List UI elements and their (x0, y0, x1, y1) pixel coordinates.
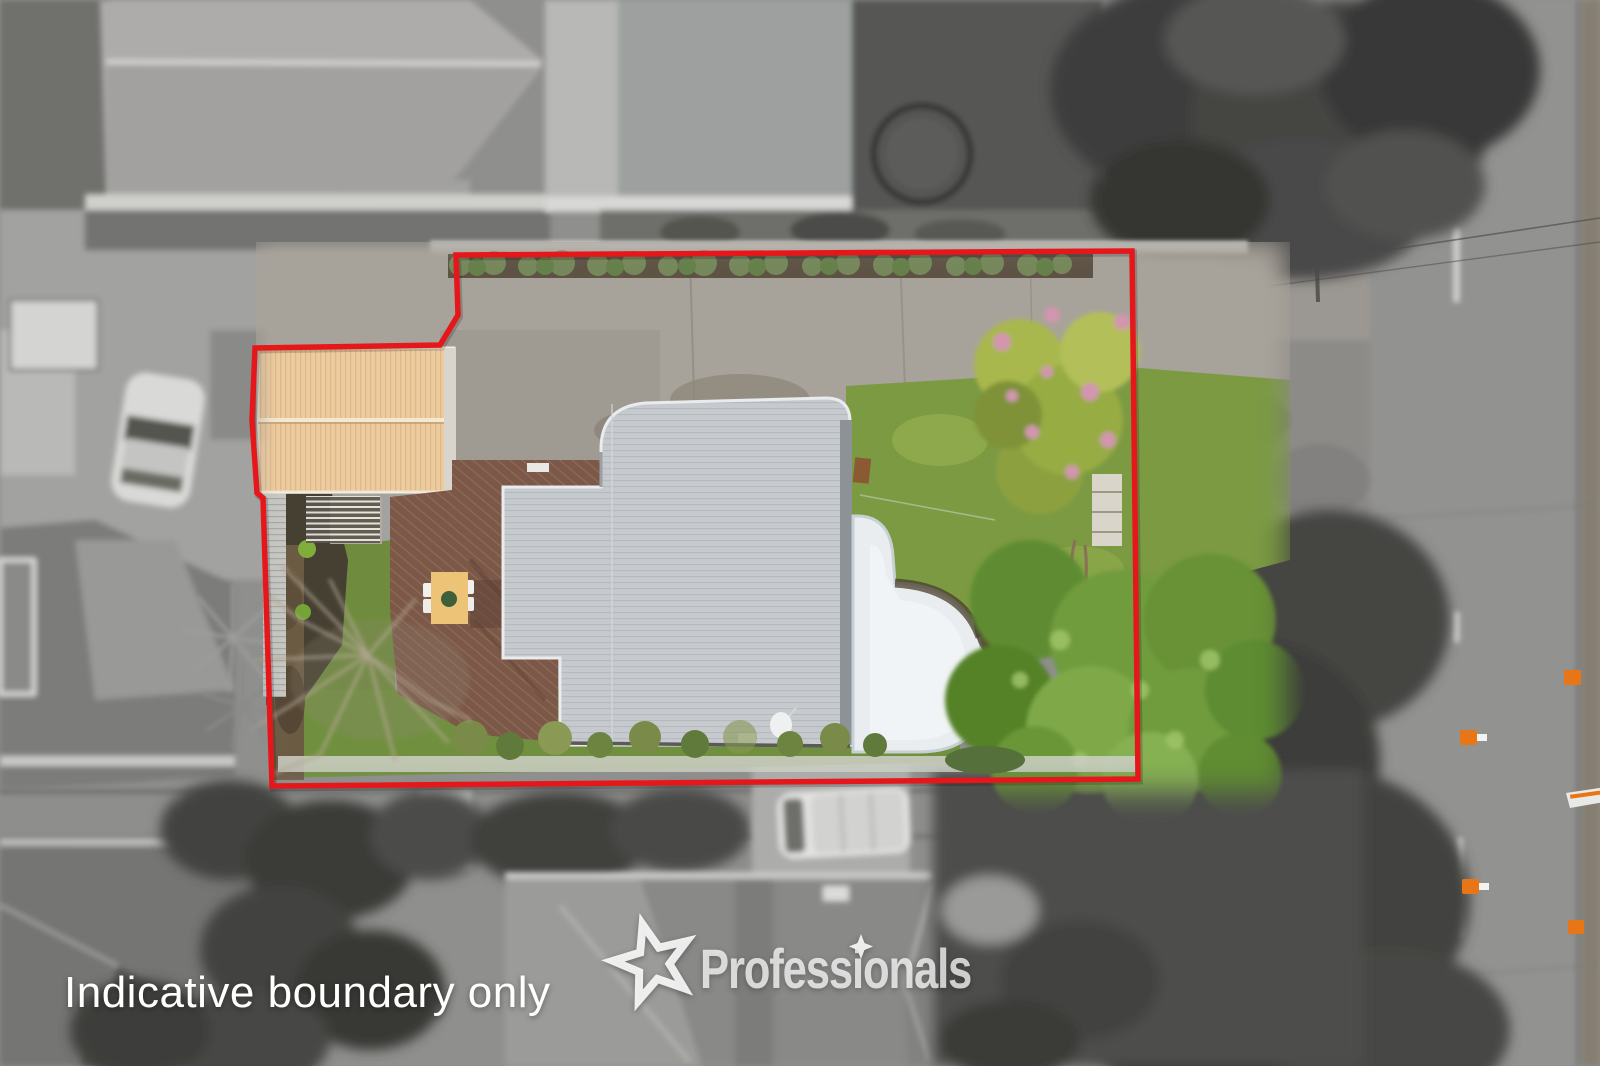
neighbor-roof-top-center (545, 0, 1140, 252)
brand-text: Professionals (700, 938, 971, 1000)
neighbor-roof-top-left (85, 0, 550, 250)
property-color-zone (250, 242, 1305, 828)
watermark-note: Indicative boundary only (64, 968, 551, 1017)
aerial-photo: Indicative boundary only Professionals (0, 0, 1600, 1066)
aerial-photo-canvas: Indicative boundary only Professionals (0, 0, 1600, 1066)
chimney (823, 886, 849, 901)
pergola (306, 496, 382, 544)
outdoor-table (423, 572, 504, 628)
bbq (853, 457, 872, 484)
white-van (776, 787, 911, 860)
shed-roof (258, 348, 456, 492)
